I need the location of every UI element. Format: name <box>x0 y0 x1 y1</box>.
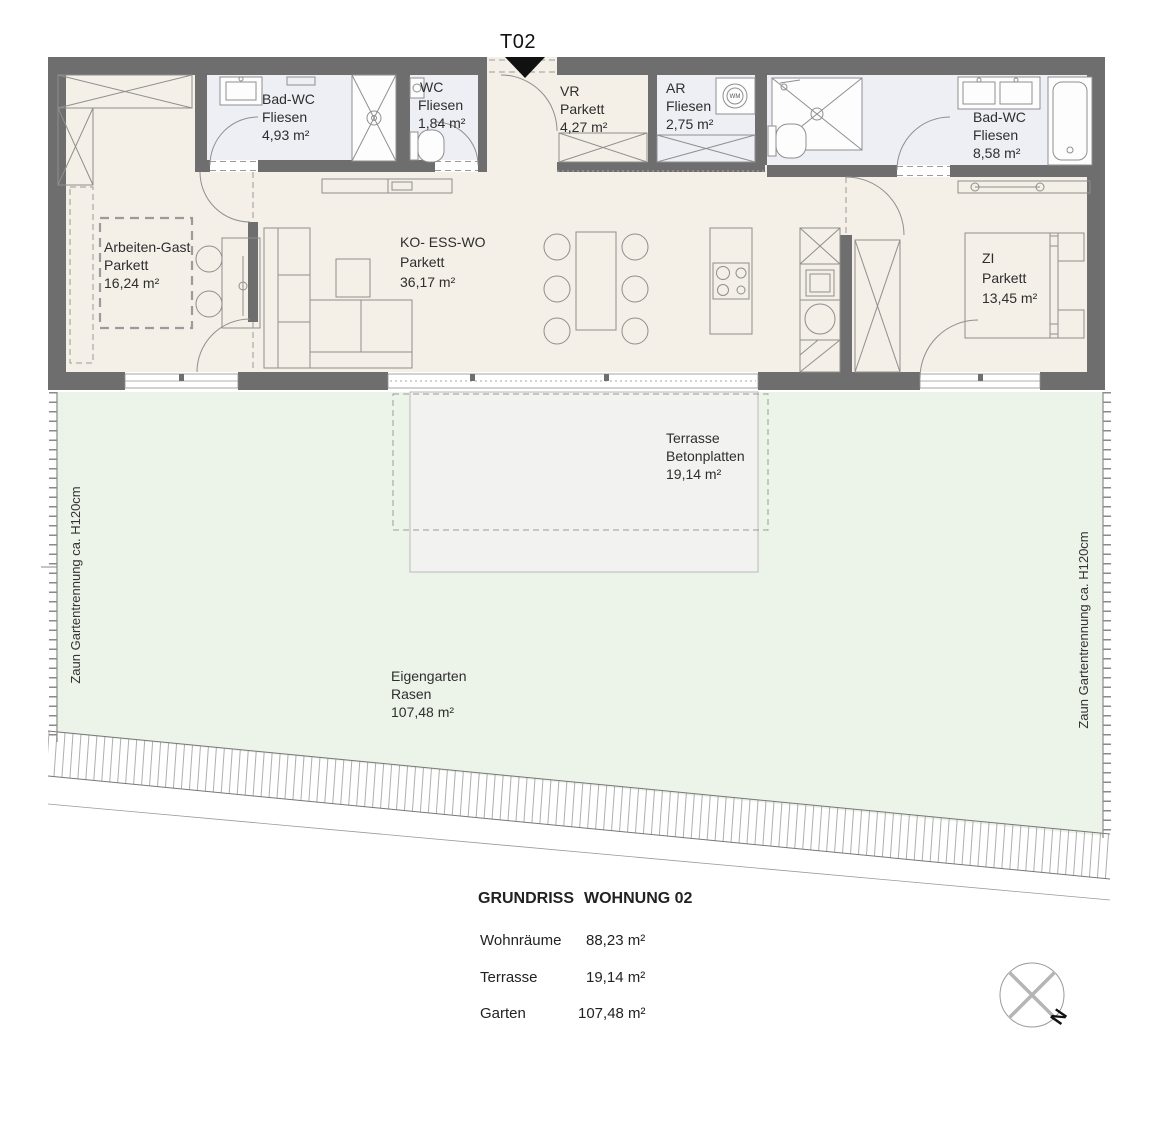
double-sink <box>958 77 1040 109</box>
room-area: 4,93 m² <box>262 127 310 143</box>
fence-label-right: Zaun Gartentrennung ca. H120cm <box>1076 531 1091 728</box>
terrace-slab <box>410 392 758 572</box>
room-name: VR <box>560 83 579 99</box>
shower <box>352 75 396 161</box>
room-name: Arbeiten-Gast <box>104 239 190 255</box>
room-name: KO- ESS-WO <box>400 234 486 250</box>
room-floor: Fliesen <box>666 98 711 114</box>
room-area: 36,17 m² <box>400 274 456 290</box>
room-name: Bad-WC <box>973 109 1026 125</box>
legend-row-label: Garten <box>480 1005 526 1022</box>
room-area: 2,75 m² <box>666 116 714 132</box>
room-floor: Fliesen <box>973 127 1018 143</box>
legend-row-label: Wohnräume <box>480 932 561 949</box>
room-area: 1,84 m² <box>418 115 466 131</box>
legend-row-value: 19,14 m² <box>586 969 645 986</box>
room-area: 16,24 m² <box>104 275 160 291</box>
washing-machine: WM <box>716 78 755 114</box>
washing-machine-label: WM <box>730 94 741 100</box>
legend: GRUNDRISS WOHNUNG 02 Wohnräume 88,23 m² … <box>478 890 693 1022</box>
sink <box>220 77 262 105</box>
garden-area: 107,48 m² <box>391 704 454 720</box>
room-name: WC <box>420 79 443 95</box>
room-floor: Fliesen <box>262 109 307 125</box>
room-area: 4,27 m² <box>560 119 608 135</box>
north-label: N <box>1047 1006 1072 1029</box>
bathtub <box>1048 77 1092 165</box>
terrace-floor: Betonplatten <box>666 448 745 464</box>
sliding-door-living <box>388 374 758 388</box>
compass: N <box>1000 963 1072 1029</box>
legend-row-value: 107,48 m² <box>578 1005 646 1022</box>
legend-row-value: 88,23 m² <box>586 932 645 949</box>
legend-row-label: Terrasse <box>480 969 538 986</box>
garden-floor: Rasen <box>391 686 431 702</box>
terrace: Terrasse Betonplatten 19,14 m² <box>393 392 768 572</box>
room-floor: Parkett <box>104 257 148 273</box>
legend-subtitle: WOHNUNG 02 <box>584 890 693 907</box>
entrance-label: T02 <box>500 31 536 53</box>
garden-name: Eigengarten <box>391 668 467 684</box>
floor-plan-page: Zaun Gartentrennung ca. H120cm Zaun Gart… <box>0 0 1152 1127</box>
room-name: AR <box>666 80 685 96</box>
room-floor: Fliesen <box>418 97 463 113</box>
toilet <box>768 124 806 158</box>
floor-plan: Zaun Gartentrennung ca. H120cm Zaun Gart… <box>0 0 1152 1127</box>
room-area: 8,58 m² <box>973 145 1021 161</box>
room-floor: Parkett <box>982 270 1026 286</box>
toilet <box>410 130 444 162</box>
room-floor: Parkett <box>560 101 604 117</box>
terrace-area: 19,14 m² <box>666 466 722 482</box>
terrace-name: Terrasse <box>666 430 720 446</box>
legend-title: GRUNDRISS <box>478 890 574 907</box>
room-name: Bad-WC <box>262 91 315 107</box>
room-area: 13,45 m² <box>982 290 1038 306</box>
room-floor: Parkett <box>400 254 444 270</box>
room-name: ZI <box>982 250 994 266</box>
fence-label-left: Zaun Gartentrennung ca. H120cm <box>68 486 83 683</box>
